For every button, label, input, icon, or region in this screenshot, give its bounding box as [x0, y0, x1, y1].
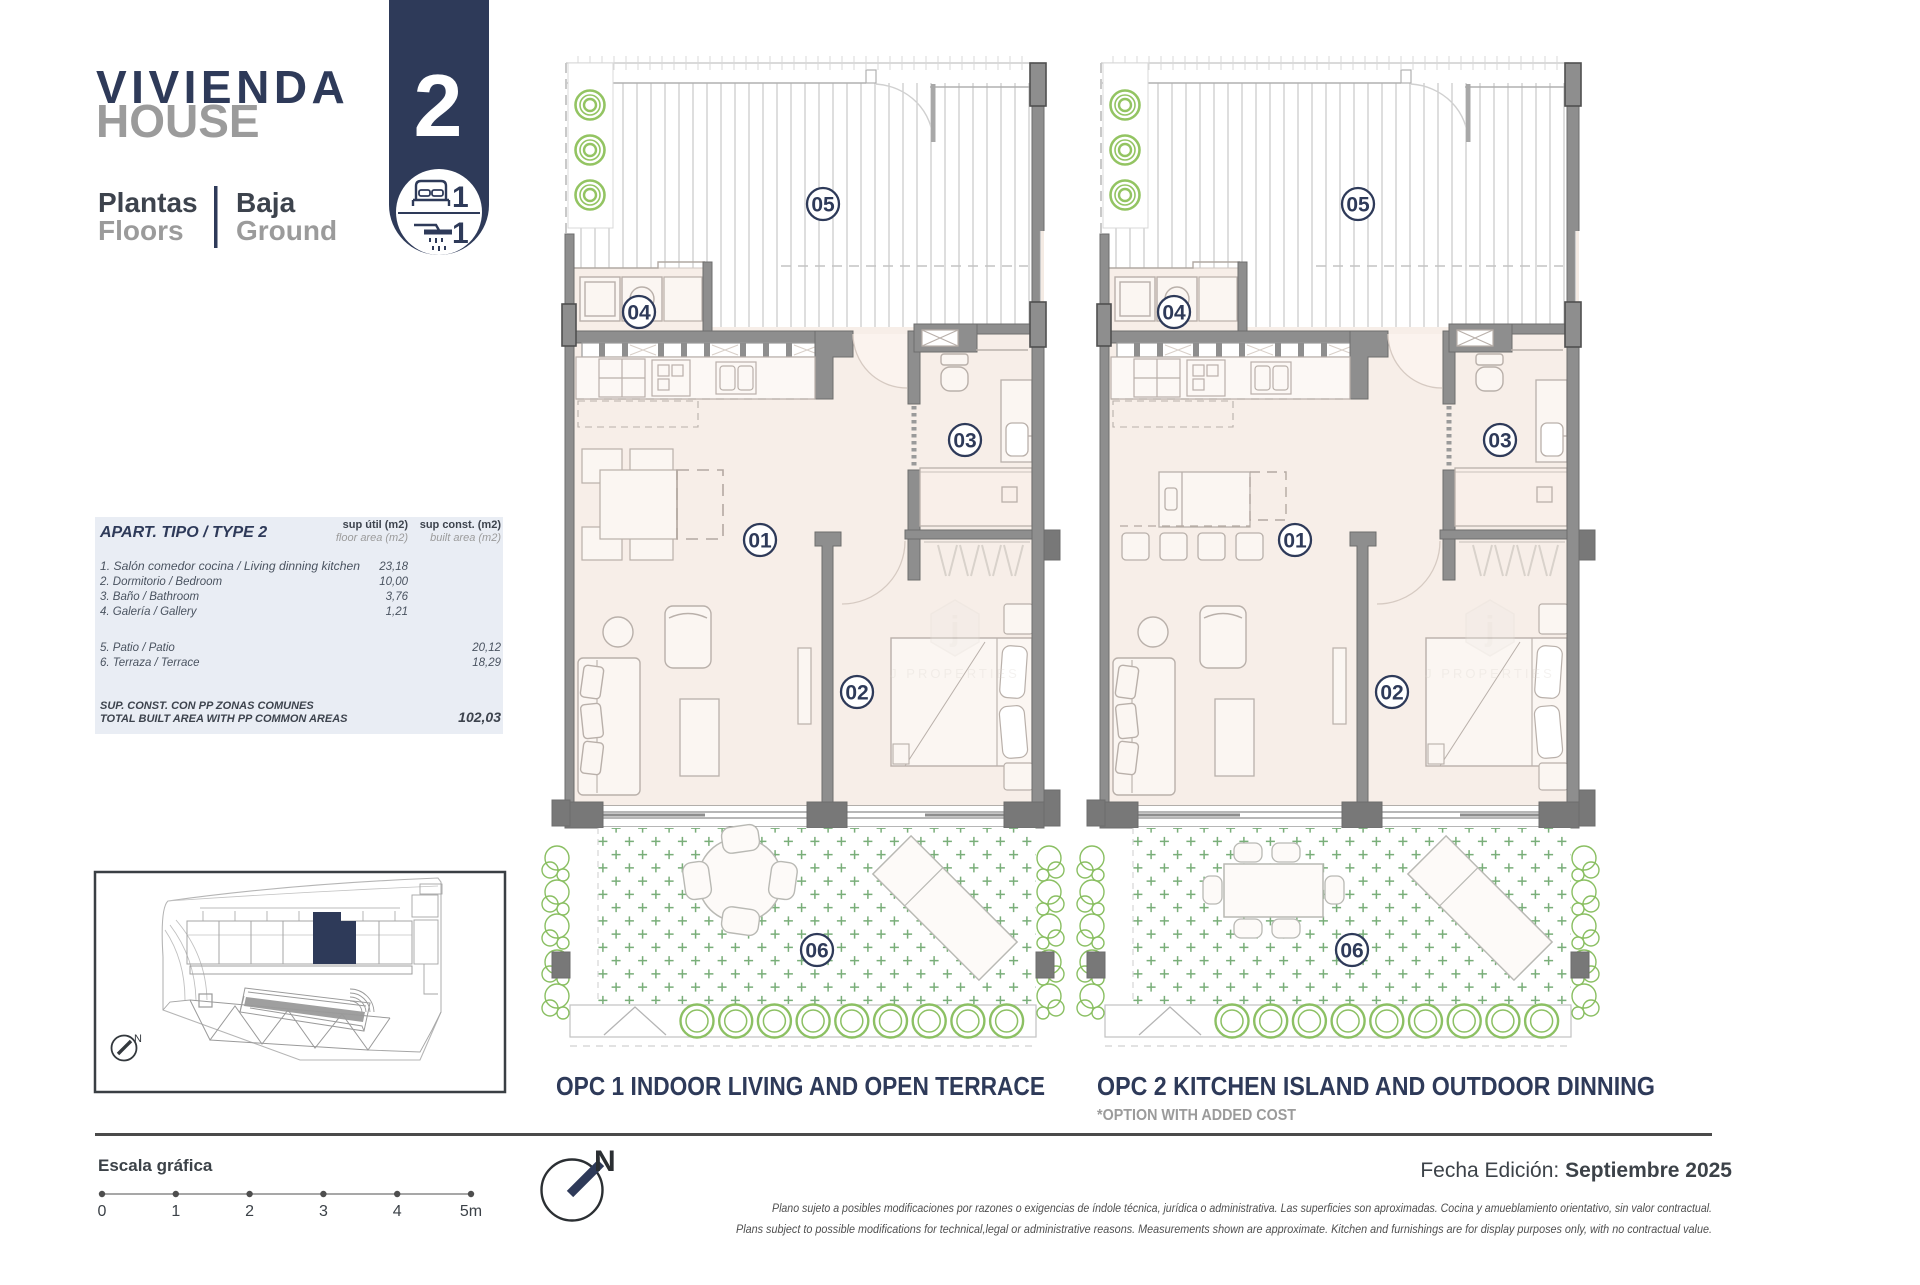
svg-text:j: j	[1484, 610, 1494, 648]
svg-text:Plano sujeto a posibles modifi: Plano sujeto a posibles modificaciones p…	[772, 1201, 1712, 1215]
svg-text:02: 02	[1380, 682, 1403, 705]
svg-text:18,29: 18,29	[472, 657, 501, 669]
svg-text:4. Galería / Gallery: 4. Galería / Gallery	[100, 606, 198, 618]
svg-text:Floors: Floors	[98, 215, 184, 246]
svg-text:Fecha Edición: Septiembre 2025: Fecha Edición: Septiembre 2025	[1420, 1159, 1732, 1182]
svg-text:Plans subject to possible modi: Plans subject to possible modifications …	[736, 1222, 1712, 1236]
svg-text:built area (m2): built area (m2)	[430, 532, 501, 544]
svg-text:3: 3	[319, 1203, 328, 1220]
svg-text:Baja: Baja	[236, 187, 296, 218]
svg-text:05: 05	[1346, 194, 1370, 217]
svg-text:1,21: 1,21	[386, 606, 408, 618]
svg-text:3,76: 3,76	[386, 591, 409, 603]
svg-text:OPC 2 KITCHEN ISLAND AND OUTDO: OPC 2 KITCHEN ISLAND AND OUTDOOR DINNING	[1097, 1071, 1655, 1101]
svg-text:05: 05	[811, 194, 835, 217]
svg-text:4: 4	[393, 1203, 402, 1220]
svg-text:*OPTION WITH ADDED COST: *OPTION WITH ADDED COST	[1097, 1107, 1296, 1124]
svg-text:06: 06	[805, 940, 828, 963]
svg-text:5. Patio / Patio: 5. Patio / Patio	[100, 642, 175, 654]
svg-text:23,18: 23,18	[378, 561, 408, 573]
svg-text:5m: 5m	[460, 1203, 482, 1220]
svg-text:2: 2	[414, 56, 463, 155]
svg-text:06: 06	[1340, 940, 1363, 963]
svg-text:03: 03	[1488, 430, 1511, 453]
svg-text:HOUSE: HOUSE	[96, 95, 260, 147]
svg-text:01: 01	[748, 530, 772, 553]
svg-text:04: 04	[1162, 302, 1186, 325]
svg-text:Plantas: Plantas	[98, 187, 198, 218]
svg-text:TOTAL BUILT AREA WITH PP COMMO: TOTAL BUILT AREA WITH PP COMMON AREAS	[100, 713, 348, 725]
svg-text:03: 03	[953, 430, 976, 453]
svg-text:1. Salón comedor cocina / Livi: 1. Salón comedor cocina / Living dinning…	[100, 561, 360, 573]
svg-text:J PROPERTIES: J PROPERTIES	[890, 666, 1020, 681]
svg-text:6. Terraza / Terrace: 6. Terraza / Terrace	[100, 657, 200, 669]
svg-text:1: 1	[452, 217, 469, 250]
svg-text:1: 1	[452, 181, 469, 214]
svg-text:N: N	[134, 1033, 142, 1045]
svg-text:N: N	[594, 1145, 616, 1178]
svg-text:Escala gráfica: Escala gráfica	[98, 1156, 213, 1175]
svg-text:APART. TIPO / TYPE 2: APART. TIPO / TYPE 2	[99, 524, 267, 541]
svg-text:Ground: Ground	[236, 215, 337, 246]
svg-text:sup const. (m2): sup const. (m2)	[420, 519, 502, 531]
svg-text:2: 2	[245, 1203, 254, 1220]
svg-text:3. Baño / Bathroom: 3. Baño / Bathroom	[100, 591, 200, 603]
svg-text:02: 02	[845, 682, 868, 705]
svg-text:10,00: 10,00	[379, 576, 408, 588]
svg-text:sup útil (m2): sup útil (m2)	[343, 519, 409, 531]
svg-text:OPC 1 INDOOR LIVING AND OPEN T: OPC 1 INDOOR LIVING AND OPEN TERRACE	[556, 1071, 1045, 1101]
svg-text:j: j	[949, 610, 959, 648]
svg-text:20,12: 20,12	[471, 642, 501, 654]
svg-text:floor area (m2): floor area (m2)	[336, 532, 408, 544]
svg-text:2. Dormitorio / Bedroom: 2. Dormitorio / Bedroom	[99, 576, 222, 588]
svg-text:J PROPERTIES: J PROPERTIES	[1425, 666, 1555, 681]
svg-text:1: 1	[171, 1203, 180, 1220]
svg-text:0: 0	[98, 1203, 107, 1220]
svg-text:102,03: 102,03	[458, 709, 501, 725]
svg-text:SUP. CONST. CON PP ZONAS COMUN: SUP. CONST. CON PP ZONAS COMUNES	[100, 700, 314, 712]
svg-text:04: 04	[627, 302, 651, 325]
svg-text:01: 01	[1283, 530, 1307, 553]
